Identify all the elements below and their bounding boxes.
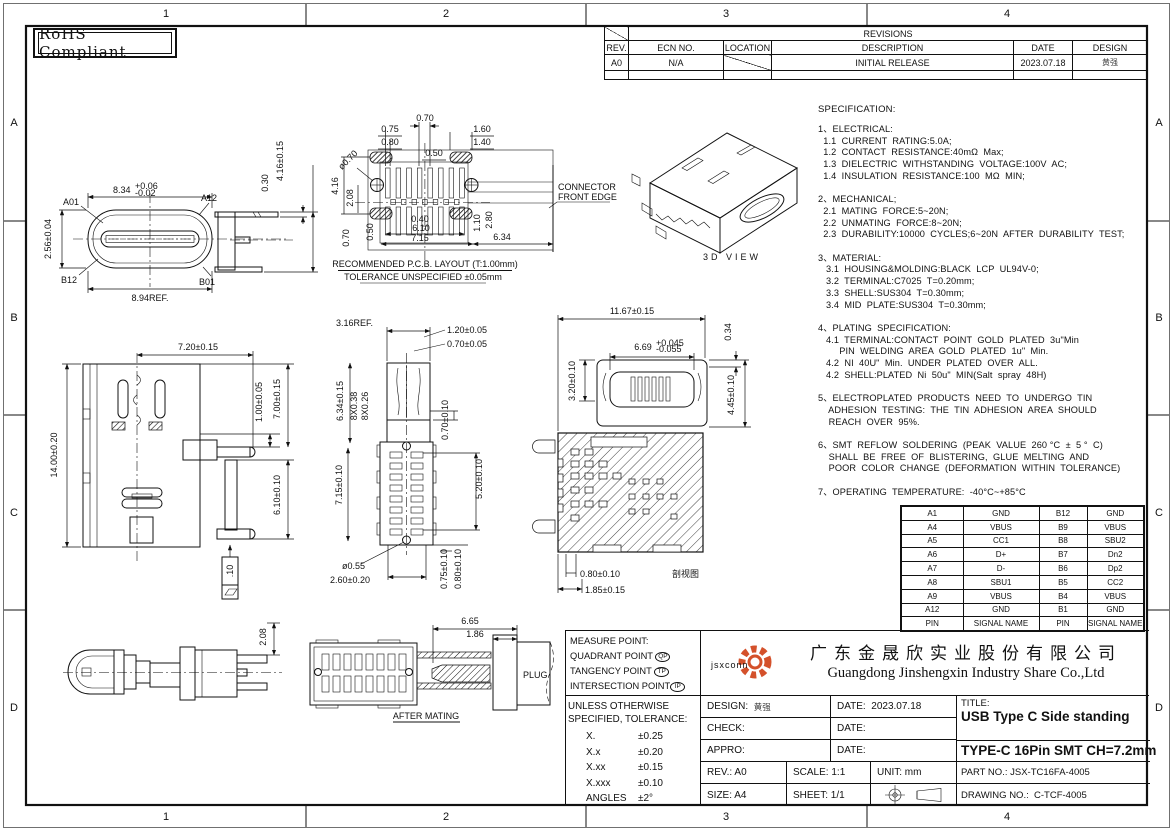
signal-b: VBUS	[1087, 520, 1144, 534]
dim-label: 1.40	[473, 137, 491, 147]
zone-col-1b: 1	[163, 811, 169, 823]
revisions-title: REVISIONS	[629, 27, 1148, 41]
zone-col-4b: 4	[1004, 811, 1010, 823]
zone-col-2: 2	[443, 8, 449, 20]
rev-value: A0	[605, 55, 629, 71]
title-area: TITLE: USB Type C Side standing TYPE-C 1…	[956, 696, 1149, 806]
dim-label: 0.75	[381, 124, 399, 134]
scale-cell: SCALE: 1:1	[787, 762, 871, 783]
dim-label: 1.60	[473, 124, 491, 134]
dim-label: 6.65	[461, 616, 479, 626]
date-col-header: DATE	[1014, 41, 1073, 55]
appro-date-cell: DATE:	[831, 740, 956, 761]
dim-label: 5.20±0.10	[474, 459, 484, 499]
tolerance-row: X.x±0.20	[568, 745, 700, 761]
dim-label: 4.16	[330, 177, 340, 195]
pin-a: A8	[901, 575, 963, 589]
design-value: 黄强	[1073, 55, 1148, 71]
location-value	[724, 55, 772, 71]
zone-row-b: B	[10, 312, 17, 324]
dim-label: 6.10±0.10	[272, 475, 282, 515]
tolerance-rows: X.±0.25 X.x±0.20 X.xx±0.15 X.xxx±0.10 AN…	[568, 729, 700, 807]
dim-label: 4.16±0.15	[275, 141, 285, 181]
design-date-cell: DATE: 2023.07.18	[831, 696, 956, 717]
after-mating-caption: AFTER MATING	[393, 711, 459, 721]
tolerance-title-2: SPECIFIED, TOLERANCE:	[568, 713, 700, 726]
design-date: 2023.07.18	[871, 701, 921, 712]
title-label: TITLE:	[957, 696, 1150, 709]
rohs-label: RoHS Compliant	[38, 32, 172, 54]
approval-grid: DESIGN: 黄强 DATE: 2023.07.18 CHECK: DATE:…	[701, 696, 956, 806]
dim-label: 7.00±0.15	[272, 379, 282, 419]
dim-label: 8X0.38	[349, 392, 359, 421]
zone-row-d: D	[10, 702, 18, 714]
signal-b: Dn2	[1087, 548, 1144, 562]
zone-col-1: 1	[163, 8, 169, 20]
dim-label: 8X0.26	[360, 392, 370, 421]
pin-label-a12: A12	[201, 193, 217, 203]
dim-label: ø0.55	[342, 561, 365, 571]
description-col-header: DESCRIPTION	[772, 41, 1014, 55]
pin-b: B5	[1039, 575, 1087, 589]
dim-label: 0.70	[416, 113, 434, 123]
dim-label: 1.10	[472, 214, 482, 232]
signal-b: CC2	[1087, 575, 1144, 589]
dim-label: 2.08	[345, 189, 355, 207]
design-name: 黄强	[754, 701, 771, 713]
pin-a: A1	[901, 506, 963, 520]
dim-label: 0.70±0.05	[447, 339, 487, 349]
design-col-header: DESIGN	[1073, 41, 1148, 55]
revisions-corner	[605, 27, 629, 41]
description-value: INITIAL RELEASE	[772, 55, 1014, 71]
flatness-symbol-icon	[225, 589, 237, 595]
tangency-point-label: TANGENCY POINT	[570, 666, 652, 676]
zone-col-4: 4	[1004, 8, 1010, 20]
pin-a: A6	[901, 548, 963, 562]
section-view-drawing: 11.67±0.15 3.20±0.10 6.69 +0.045 -0.055 …	[533, 289, 825, 611]
profile-view-drawing: 2.08	[62, 615, 287, 727]
pin-a: A4	[901, 520, 963, 534]
dim-label: 4.45±0.10	[726, 375, 736, 415]
tolerance-row: ANGLES±2°	[568, 791, 700, 807]
pin-rows: A1 GND B12 GND A4 VBUS B9 VBUS A5 CC1 B8…	[901, 506, 1144, 617]
signal-a: CC1	[963, 534, 1039, 548]
tp-badge: TP	[654, 667, 669, 677]
company-logo: jsxconn	[703, 637, 791, 689]
zone-row-c2: C	[1155, 507, 1163, 519]
dim-label: 6.34	[493, 232, 511, 242]
dim-label: 8.94REF.	[131, 293, 168, 303]
pin-table-row: A7 D- B6 Dp2	[901, 562, 1144, 576]
pin-signal-table: A1 GND B12 GND A4 VBUS B9 VBUS A5 CC1 B8…	[900, 505, 1145, 632]
dim-tol-dn: -0.055	[656, 344, 682, 354]
side-view-drawing: 7.20±0.15 14.00±0.20 1.00±0.05 7.00±0.15…	[48, 323, 303, 615]
dim-label: 3.16REF.	[336, 318, 373, 328]
zone-col-3: 3	[723, 8, 729, 20]
dim-label: 2.08	[258, 628, 268, 646]
pin-table-row: A8 SBU1 B5 CC2	[901, 575, 1144, 589]
dim-label: 7.20±0.15	[178, 342, 218, 352]
zone-row-c: C	[10, 507, 18, 519]
dim-label: 0.50	[365, 223, 375, 241]
tolerance-row: X.±0.25	[568, 729, 700, 745]
company-name-cn: 广东金晟欣实业股份有限公司	[786, 639, 1146, 664]
dim-label: 0.70	[341, 229, 351, 247]
pin-b: B9	[1039, 520, 1087, 534]
signal-b: VBUS	[1087, 589, 1144, 603]
pin-b: B1	[1039, 603, 1087, 617]
qp-badge: QP	[655, 652, 670, 662]
pin-table-row: A9 VBUS B4 VBUS	[901, 589, 1144, 603]
dim-label: 6.69	[634, 342, 652, 352]
dim-label: 7.15	[411, 233, 429, 243]
dim-label: 2.80	[484, 211, 494, 229]
rev-cell: REV.: A0	[701, 762, 787, 783]
pin-b: B6	[1039, 562, 1087, 576]
pin-a: A12	[901, 603, 963, 617]
ip-badge: IP	[670, 682, 685, 692]
dim-label: 1.20±0.05	[447, 325, 487, 335]
zone-row-a: A	[10, 117, 17, 129]
rev-col-header: REV.	[605, 41, 629, 55]
pcb-note-line2: FRONT EDGE	[558, 192, 617, 202]
pin-b: B4	[1039, 589, 1087, 603]
location-col-header: LOCATION	[724, 41, 772, 55]
signal-b: Dp2	[1087, 562, 1144, 576]
part-no-label: PART NO.:	[961, 767, 1007, 778]
zone-row-b2: B	[1155, 312, 1162, 324]
flatness-value: .10	[225, 565, 235, 578]
drawing-no-value: C-TCF-4005	[1034, 790, 1087, 801]
pcb-caption-1: RECOMMENDED P.C.B. LAYOUT (T:1.00mm)	[332, 259, 518, 269]
dim-label: 11.67±0.15	[610, 306, 654, 316]
drawing-no-label: DRAWING NO.:	[961, 790, 1029, 801]
pin-label-b12: B12	[61, 275, 77, 285]
pin-b: B7	[1039, 548, 1087, 562]
measure-point-title: MEASURE POINT:	[570, 634, 700, 649]
first-angle-projection-icon	[881, 786, 947, 804]
part-no-value: JSX-TC16FA-4005	[1010, 767, 1090, 778]
zone-col-3b: 3	[723, 811, 729, 823]
pin-table-row: A6 D+ B7 Dn2	[901, 548, 1144, 562]
pin-a: A7	[901, 562, 963, 576]
pin-table-row: A1 GND B12 GND	[901, 506, 1144, 520]
drawing-sheet: 1 2 3 4 1 2 3 4 A B C D A B C D RoHS Com…	[0, 0, 1173, 831]
company-header: jsxconn 广东金晟欣实业股份有限公司 Guangdong Jinsheng…	[701, 631, 1149, 696]
pin-label-b01: B01	[199, 277, 215, 287]
dim-label: 0.30	[260, 174, 270, 192]
zone-row-d2: D	[1155, 702, 1163, 714]
size-cell: SIZE: A4	[701, 784, 787, 806]
iso-3d-view-drawing: 3D VIEW	[612, 108, 817, 268]
signal-b: GND	[1087, 603, 1144, 617]
pin-table-row: A12 GND B1 GND	[901, 603, 1144, 617]
dim-label: 1.86	[466, 629, 484, 639]
pcb-note-line1: CONNECTOR	[558, 182, 616, 192]
title-line-1: USB Type C Side standing	[957, 709, 1150, 724]
dim-label: 1.85±0.15	[585, 585, 625, 595]
tolerance-row: X.xx±0.15	[568, 760, 700, 776]
specification-block: SPECIFICATION: 1、ELECTRICAL: 1.1 CURRENT…	[818, 104, 1152, 499]
after-mating-drawing: PLUG 6.65 1.86 AFTER MATING	[298, 610, 573, 732]
logo-text: jsxconn	[710, 660, 749, 670]
pin-table-row: A5 CC1 B8 SBU2	[901, 534, 1144, 548]
title-block: MEASURE POINT: QUADRANT POINT QP TANGENC…	[565, 630, 1149, 806]
front-view-drawing: 8.34 +0.06 -0.02 2.56±0.04 8.94REF. A01 …	[35, 135, 320, 307]
unit-cell: UNIT: mm	[871, 762, 956, 783]
signal-a: GND	[963, 603, 1039, 617]
check-date-cell: DATE:	[831, 718, 956, 739]
appro-cell: APPRO:	[701, 740, 831, 761]
pin-b: B8	[1039, 534, 1087, 548]
pin-a: A5	[901, 534, 963, 548]
measure-point-box: MEASURE POINT: QUADRANT POINT QP TANGENC…	[566, 631, 701, 696]
dim-label: 14.00±0.20	[49, 433, 59, 478]
revisions-table: REVISIONS REV. ECN NO. LOCATION DESCRIPT…	[604, 26, 1148, 80]
design-cell: DESIGN: 黄强	[701, 696, 831, 717]
dim-label: 0.34	[723, 323, 733, 341]
company-name-en: Guangdong Jinshengxin Industry Share Co.…	[786, 665, 1146, 682]
signal-a: D-	[963, 562, 1039, 576]
dim-tol-dn: -0.02	[135, 188, 156, 198]
pin-b: B12	[1039, 506, 1087, 520]
title-line-2: TYPE-C 16Pin SMT CH=7.2mm	[957, 741, 1150, 758]
dim-label: 3.20±0.10	[567, 361, 577, 401]
pcb-layout-drawing: 0.75 0.80 0.70 0.50 1.60 1.40 ø0.70 4.16…	[330, 110, 615, 290]
pin-label-a01: A01	[63, 197, 79, 207]
signal-a: SBU1	[963, 575, 1039, 589]
section-caption: 剖视图	[672, 568, 699, 579]
plug-label: PLUG	[523, 670, 548, 680]
dim-label: 7.15±0.10	[334, 465, 344, 505]
dim-label: 2.56±0.04	[43, 219, 53, 259]
ecn-col-header: ECN NO.	[629, 41, 724, 55]
projection-symbols-cell	[871, 784, 956, 806]
tolerance-title-1: UNLESS OTHERWISE	[568, 700, 700, 713]
dim-label: 0.80±0.10	[580, 569, 620, 579]
bottom-view-drawing: 3.16REF. 1.20±0.05 0.70±0.05 6.34±0.15 8…	[328, 293, 548, 615]
dim-label: 8.34	[113, 185, 131, 195]
dim-label: 6.10	[412, 223, 430, 233]
check-cell: CHECK:	[701, 718, 831, 739]
signal-b: SBU2	[1087, 534, 1144, 548]
pin-table-row: A4 VBUS B9 VBUS	[901, 520, 1144, 534]
specification-title: SPECIFICATION:	[818, 104, 1152, 115]
specification-text: 1、ELECTRICAL: 1.1 CURRENT RATING:5.0A; 1…	[818, 124, 1152, 499]
date-value: 2023.07.18	[1014, 55, 1073, 71]
zone-row-a2: A	[1155, 117, 1162, 129]
dim-label: 0.50	[425, 148, 443, 158]
dim-label: 1.00±0.05	[254, 382, 264, 422]
tolerance-box: UNLESS OTHERWISE SPECIFIED, TOLERANCE: X…	[566, 696, 701, 806]
intersection-point-label: INTERSECTION POINT	[570, 681, 670, 691]
signal-a: VBUS	[963, 589, 1039, 603]
iso-view-label: 3D VIEW	[703, 252, 761, 262]
dim-label: ø0.70	[336, 148, 359, 171]
zone-col-2b: 2	[443, 811, 449, 823]
dim-label: 0.80±0.10	[453, 549, 463, 589]
dim-label: 6.34±0.15	[335, 381, 345, 421]
signal-a: D+	[963, 548, 1039, 562]
sheet-cell: SHEET: 1/1	[787, 784, 871, 806]
signal-b: GND	[1087, 506, 1144, 520]
quadrant-point-label: QUADRANT POINT	[570, 651, 653, 661]
dim-label: 2.60±0.20	[330, 575, 370, 585]
dim-label: 0.75±0.10	[439, 549, 449, 589]
ecn-value: N/A	[629, 55, 724, 71]
signal-a: VBUS	[963, 520, 1039, 534]
rohs-stamp: RoHS Compliant	[33, 28, 177, 58]
tolerance-row: X.xxx±0.10	[568, 776, 700, 792]
pcb-caption-2: TOLERANCE UNSPECIFIED ±0.05mm	[344, 272, 502, 282]
signal-a: GND	[963, 506, 1039, 520]
cone-projection-icon	[917, 789, 941, 802]
pin-a: A9	[901, 589, 963, 603]
dim-label: 0.80	[381, 137, 399, 147]
